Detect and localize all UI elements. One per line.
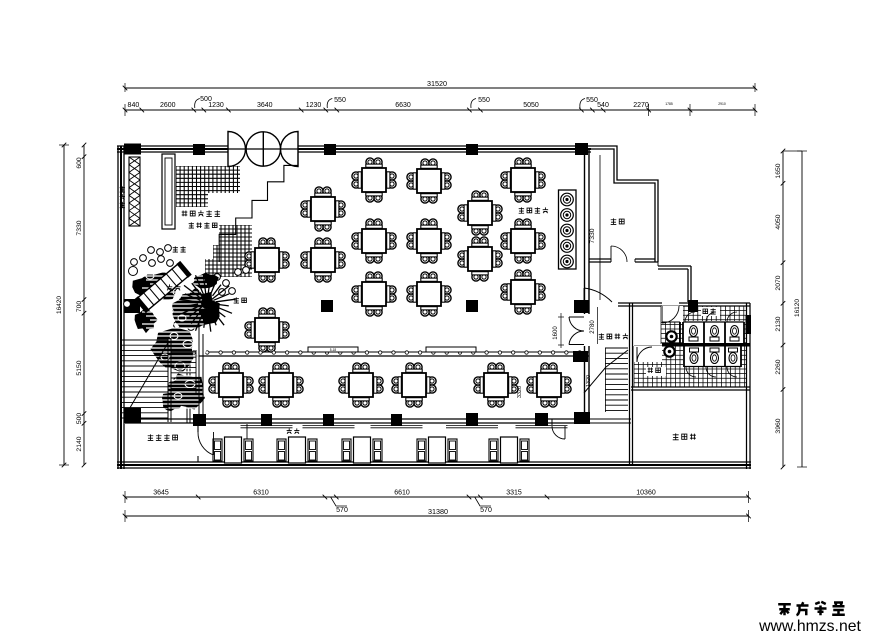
svg-text:1600: 1600 bbox=[553, 326, 559, 340]
svg-text:3960: 3960 bbox=[775, 418, 782, 433]
svg-text:5-18: 5-18 bbox=[330, 348, 337, 352]
svg-text:3645: 3645 bbox=[153, 490, 169, 497]
svg-text:2140: 2140 bbox=[76, 436, 83, 451]
svg-text:540: 540 bbox=[597, 102, 609, 109]
svg-text:2600: 2600 bbox=[160, 102, 176, 109]
svg-text:31380: 31380 bbox=[428, 507, 448, 516]
svg-text:2260: 2260 bbox=[775, 359, 782, 374]
svg-text:550: 550 bbox=[586, 97, 598, 104]
svg-text:3315: 3315 bbox=[506, 490, 522, 497]
svg-text:3320: 3320 bbox=[517, 386, 523, 398]
svg-text:1320: 1320 bbox=[586, 375, 592, 387]
svg-text:1230: 1230 bbox=[208, 102, 224, 109]
svg-text:570: 570 bbox=[336, 507, 348, 514]
svg-text:840: 840 bbox=[128, 102, 140, 109]
svg-text:1230: 1230 bbox=[306, 102, 322, 109]
svg-text:2270: 2270 bbox=[633, 102, 649, 109]
svg-text:16420: 16420 bbox=[56, 296, 63, 314]
svg-text:6610: 6610 bbox=[394, 490, 410, 497]
svg-text:www.hmzs.net: www.hmzs.net bbox=[758, 618, 861, 635]
svg-text:6630: 6630 bbox=[395, 102, 411, 109]
svg-text:4050: 4050 bbox=[775, 214, 782, 229]
svg-text:600: 600 bbox=[76, 157, 83, 169]
svg-text:1650: 1650 bbox=[775, 163, 782, 178]
svg-text:500: 500 bbox=[200, 96, 212, 103]
svg-text:31520: 31520 bbox=[427, 79, 447, 88]
svg-text:10360: 10360 bbox=[636, 490, 656, 497]
svg-text:500: 500 bbox=[76, 413, 83, 425]
svg-text:550: 550 bbox=[478, 97, 490, 104]
svg-text:570: 570 bbox=[480, 507, 492, 514]
svg-text:700: 700 bbox=[76, 301, 83, 313]
svg-text:5050: 5050 bbox=[523, 102, 539, 109]
svg-text:2780: 2780 bbox=[590, 320, 596, 334]
svg-text:1785: 1785 bbox=[665, 102, 673, 106]
svg-text:2070: 2070 bbox=[775, 275, 782, 290]
svg-text:2910: 2910 bbox=[718, 102, 726, 106]
svg-text:5150: 5150 bbox=[76, 360, 83, 375]
svg-text:7330: 7330 bbox=[589, 228, 596, 243]
svg-text:2130: 2130 bbox=[775, 316, 782, 331]
svg-text:7330: 7330 bbox=[76, 220, 83, 235]
svg-text:550: 550 bbox=[334, 97, 346, 104]
svg-text:6310: 6310 bbox=[253, 490, 269, 497]
svg-text:16120: 16120 bbox=[794, 299, 801, 317]
svg-text:3640: 3640 bbox=[257, 102, 273, 109]
